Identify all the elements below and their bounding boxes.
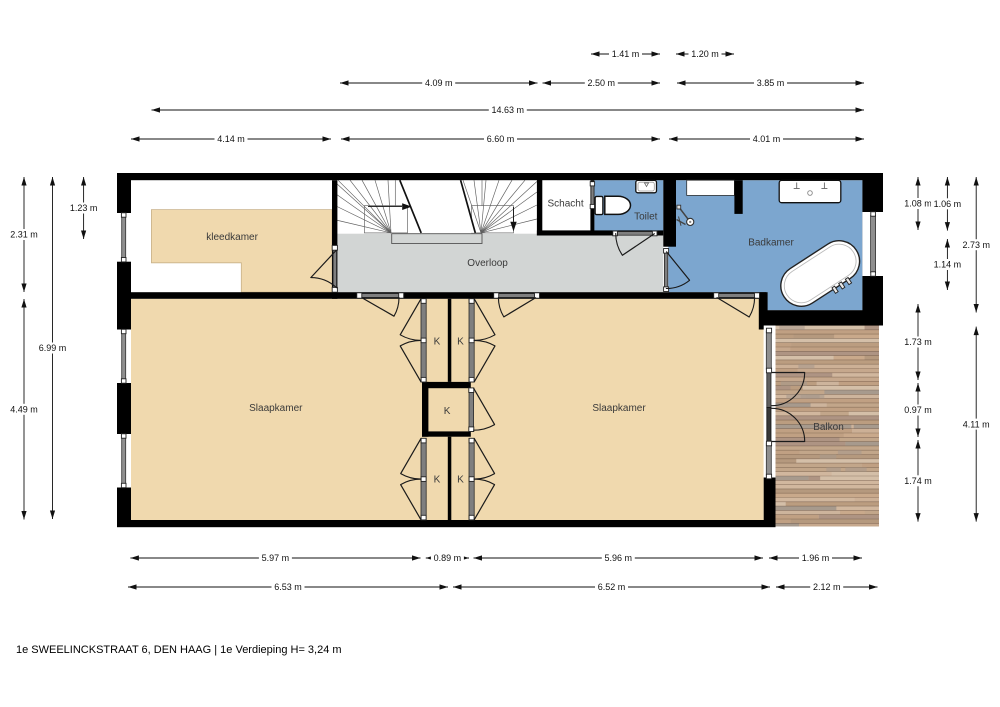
- svg-text:Badkamer: Badkamer: [748, 238, 794, 249]
- svg-text:4.01 m: 4.01 m: [753, 134, 781, 144]
- svg-text:K: K: [457, 475, 464, 486]
- svg-text:14.63 m: 14.63 m: [492, 105, 525, 115]
- svg-text:1.20 m: 1.20 m: [691, 49, 719, 59]
- svg-text:K: K: [457, 337, 464, 348]
- svg-text:Toilet: Toilet: [634, 212, 658, 223]
- svg-text:1.06 m: 1.06 m: [934, 199, 962, 209]
- svg-text:1.23 m: 1.23 m: [70, 203, 98, 213]
- svg-text:Overloop: Overloop: [467, 258, 508, 269]
- svg-text:Slaapkamer: Slaapkamer: [592, 403, 646, 414]
- svg-text:2.73 m: 2.73 m: [962, 240, 990, 250]
- svg-text:6.60 m: 6.60 m: [487, 134, 515, 144]
- svg-text:kleedkamer: kleedkamer: [206, 232, 258, 243]
- svg-text:4.14 m: 4.14 m: [217, 134, 245, 144]
- svg-text:1.96 m: 1.96 m: [802, 553, 830, 563]
- svg-text:1.14 m: 1.14 m: [934, 260, 962, 270]
- svg-text:6.99 m: 6.99 m: [39, 343, 67, 353]
- svg-text:6.52 m: 6.52 m: [598, 582, 626, 592]
- svg-text:1.41 m: 1.41 m: [612, 49, 640, 59]
- svg-text:2.31 m: 2.31 m: [10, 230, 38, 240]
- svg-text:Balkon: Balkon: [813, 422, 844, 433]
- svg-text:5.97 m: 5.97 m: [262, 553, 290, 563]
- svg-text:4.49 m: 4.49 m: [10, 404, 38, 414]
- svg-text:4.11 m: 4.11 m: [963, 419, 990, 429]
- svg-text:2.12 m: 2.12 m: [813, 582, 841, 592]
- svg-text:1.74 m: 1.74 m: [904, 476, 932, 486]
- svg-text:Schacht: Schacht: [548, 199, 584, 210]
- svg-text:0.97 m: 0.97 m: [904, 405, 932, 415]
- svg-text:3.85 m: 3.85 m: [757, 78, 785, 88]
- svg-text:1.08 m: 1.08 m: [904, 199, 932, 209]
- svg-text:1.73 m: 1.73 m: [904, 337, 932, 347]
- svg-text:6.53 m: 6.53 m: [274, 582, 302, 592]
- svg-text:K: K: [444, 406, 451, 417]
- svg-text:2.50 m: 2.50 m: [587, 78, 615, 88]
- svg-text:K: K: [434, 337, 441, 348]
- svg-text:K: K: [434, 475, 441, 486]
- svg-text:5.96 m: 5.96 m: [604, 553, 632, 563]
- svg-text:Slaapkamer: Slaapkamer: [249, 403, 303, 414]
- svg-text:1e SWEELINCKSTRAAT 6, DEN HAAG: 1e SWEELINCKSTRAAT 6, DEN HAAG | 1e Verd…: [16, 644, 342, 656]
- svg-text:4.09 m: 4.09 m: [425, 78, 453, 88]
- svg-text:0.89 m: 0.89 m: [434, 553, 462, 563]
